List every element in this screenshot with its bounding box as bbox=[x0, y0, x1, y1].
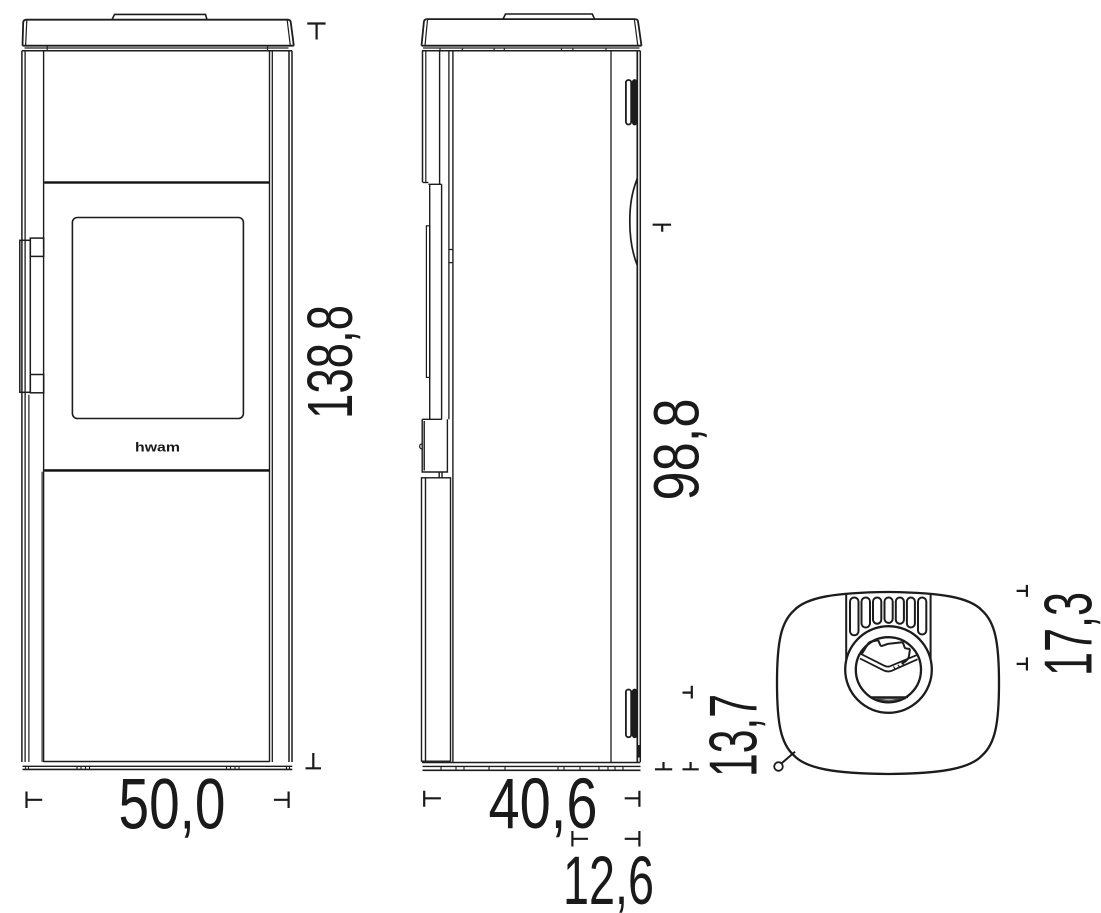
svg-text:40,6: 40,6 bbox=[489, 765, 598, 844]
svg-text:50,0: 50,0 bbox=[119, 766, 226, 845]
svg-text:138,8: 138,8 bbox=[294, 305, 366, 419]
svg-text:98,8: 98,8 bbox=[641, 399, 713, 501]
svg-text:hwam: hwam bbox=[135, 440, 180, 455]
svg-text:13,7: 13,7 bbox=[696, 694, 772, 777]
svg-text:17,3: 17,3 bbox=[1031, 592, 1101, 676]
svg-text:12,6: 12,6 bbox=[563, 842, 654, 913]
